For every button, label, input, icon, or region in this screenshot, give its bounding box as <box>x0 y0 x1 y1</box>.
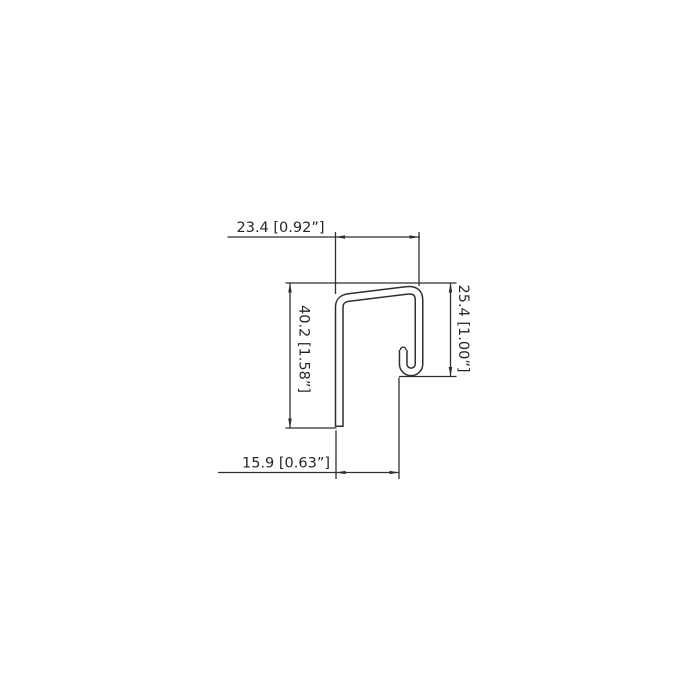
dimension-label-top: 23.4 [0.92”] <box>237 220 325 236</box>
arrow-bottom-left <box>336 471 346 475</box>
arrow-top-right <box>410 235 420 239</box>
profile-outline-outer <box>339 290 419 427</box>
profile-cross-section <box>339 290 419 427</box>
dimension-label-bottom: 15.9 [0.63”] <box>242 456 330 472</box>
arrow-left-down <box>288 419 292 429</box>
dimension-label-right: 25.4 [1.00”] <box>455 285 471 373</box>
dimension-arrows <box>288 235 452 474</box>
arrow-top-left <box>336 235 346 239</box>
drawing-canvas: 23.4 [0.92”] 40.2 [1.58”] 25.4 [1.00”] 1… <box>0 0 700 700</box>
arrow-bottom-right <box>390 471 400 475</box>
dimension-label-left: 40.2 [1.58”] <box>296 305 312 393</box>
arrow-right-up <box>449 283 453 293</box>
arrow-right-down <box>449 367 453 377</box>
profile-dimension-drawing: 23.4 [0.92”] 40.2 [1.58”] 25.4 [1.00”] 1… <box>0 0 700 700</box>
dimension-labels: 23.4 [0.92”] 40.2 [1.58”] 25.4 [1.00”] 1… <box>237 220 472 472</box>
arrow-left-up <box>288 283 292 293</box>
